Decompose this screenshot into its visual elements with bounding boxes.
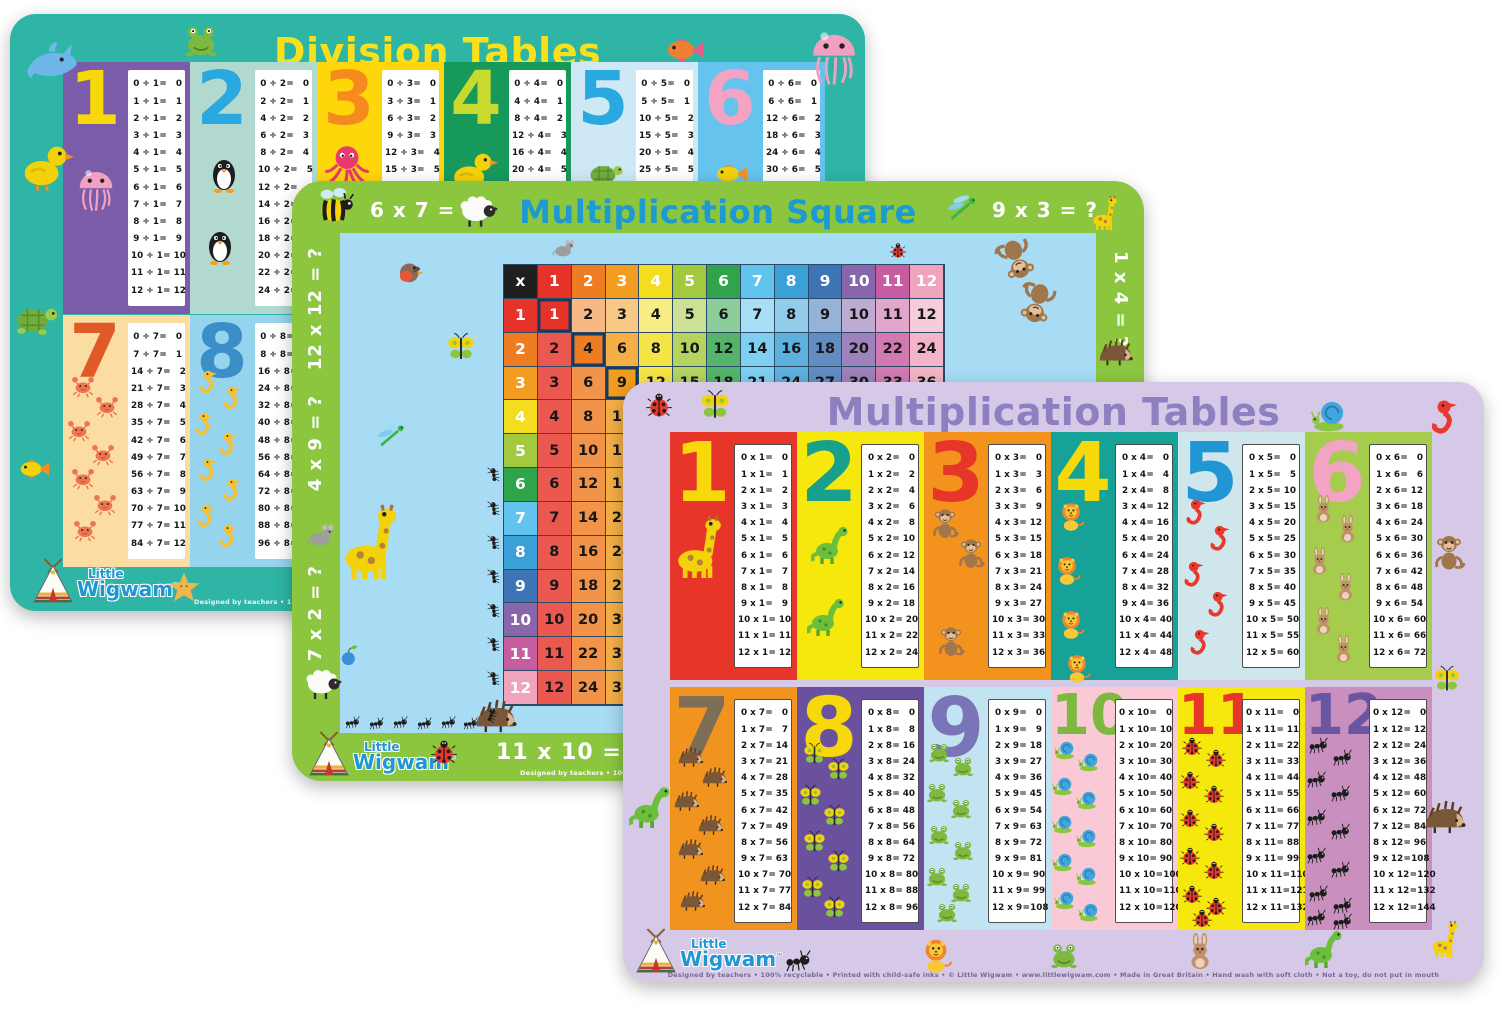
fact-row: 2 x 4=8 [1119,487,1169,496]
grid-row-header-cell: 4 [504,400,538,434]
grid-cell: 8 [775,299,809,333]
sheep-icon [458,189,500,231]
fact-row: 4 x 6=24 [1373,519,1423,528]
fact-row: 5 x 11=55 [1246,790,1296,799]
tables-panel-2: 20 x 2=01 x 2=22 x 2=43 x 2=64 x 2=85 x … [797,432,924,680]
fact-row: 4 x 11=44 [1246,774,1296,783]
grid-row-header-cell: 6 [504,468,538,502]
crab-icon [69,463,97,491]
fact-row: 9 x 10=90 [1119,855,1169,864]
fact-row: 18 ÷ 6=3 [766,132,817,141]
facts-box: 0 x 2=01 x 2=22 x 2=43 x 2=64 x 2=85 x 2… [861,444,919,668]
fact-row: 10 x 4=40 [1119,616,1169,625]
prompt-9x3: 9 x 3 = ? [992,198,1098,222]
fact-row: 5 x 3=15 [992,535,1042,544]
ladybird-icon [1180,883,1204,907]
fact-row: 10 ÷ 1=10 [131,252,182,261]
grid-cell: 9 [809,299,843,333]
grid-cell: 22 [876,333,910,367]
fact-row: 9 x 6=54 [1373,600,1423,609]
grid-header-cell: 1 [538,265,572,299]
fact-row: 42 ÷ 7=6 [131,437,182,446]
fact-row: 11 x 1=11 [738,632,788,641]
grid-cell: 12 [572,468,606,502]
fact-row: 4 x 1=4 [738,519,788,528]
panel-numeral: 10 [1051,687,1115,744]
giraffe-icon [1429,906,1465,972]
grid-cell: 6 [707,299,741,333]
grid-row-header-cell: 8 [504,536,538,570]
fact-row: 12 x 9=108 [992,904,1042,913]
grid-header-cell: 2 [572,265,606,299]
ant-icon [484,601,502,619]
fact-row: 3 x 9=27 [992,758,1042,767]
panel-numeral: 3 [317,62,381,137]
rabbit-icon [1181,932,1219,970]
grid-cell: 10 [673,333,707,367]
fact-row: 11 x 8=88 [865,887,915,896]
snail-icon [1075,787,1100,812]
hedgehog-icon [1421,794,1467,840]
grid-cell: 10 [842,299,876,333]
fact-row: 10 x 7=70 [738,871,788,880]
facts-box: 0 x 6=01 x 6=62 x 6=123 x 6=184 x 6=245 … [1369,444,1427,668]
fact-row: 11 x 5=55 [1246,632,1296,641]
facts-box: 0 x 11=01 x 11=112 x 11=223 x 11=334 x 1… [1242,699,1300,923]
fact-row: 84 ÷ 7=12 [131,540,182,549]
fact-row: 4 x 7=28 [738,774,788,783]
fact-row: 11 x 6=66 [1373,632,1423,641]
fact-row: 7 x 6=42 [1373,568,1423,577]
fact-row: 0 x 7=0 [738,709,788,718]
butterfly-icon [444,331,478,365]
fact-row: 11 x 10=110 [1119,887,1169,896]
seahorse-icon [1202,590,1232,620]
fact-row: 11 x 2=22 [865,632,915,641]
ladybird-icon [1178,769,1202,793]
facts-box: 0 x 4=01 x 4=42 x 4=83 x 4=124 x 4=165 x… [1115,444,1173,668]
fact-row: 10 ÷ 5=2 [639,115,690,124]
ant-icon [1307,881,1331,905]
prompt-12x12: 12 x 12 = ? [305,247,326,370]
snail-icon [1075,825,1100,850]
fact-row: 6 x 6=36 [1373,552,1423,561]
fact-row: 0 ÷ 3=0 [385,80,436,89]
fact-row: 0 ÷ 4=0 [512,80,563,89]
grid-header-cell: 9 [809,265,843,299]
fact-row: 11 x 9=99 [992,887,1042,896]
fact-row: 3 x 6=18 [1373,503,1423,512]
snail-icon [1051,849,1076,874]
grid-cell: 4 [572,333,606,367]
fact-row: 49 ÷ 7=7 [131,454,182,463]
fact-row: 7 x 1=7 [738,568,788,577]
fact-row: 9 x 3=27 [992,600,1042,609]
grid-cell: 4 [538,400,572,434]
hedgehog-icon [700,763,728,791]
ant-icon [462,714,480,732]
fact-row: 9 x 9=81 [992,855,1042,864]
fact-row: 20 ÷ 4=5 [512,166,563,175]
fact-row: 9 x 12=108 [1373,855,1423,864]
fact-row: 15 ÷ 5=3 [639,132,690,141]
facts-box: 0 x 9=01 x 9=92 x 9=183 x 9=274 x 9=365 … [988,699,1046,923]
fact-row: 2 x 2=4 [865,487,915,496]
fact-row: 14 ÷ 7=2 [131,368,182,377]
fact-row: 9 x 7=63 [738,855,788,864]
jellyfish-icon [802,22,866,86]
grid-cell: 2 [538,333,572,367]
fact-row: 56 ÷ 7=8 [131,471,182,480]
grid-cell: 20 [572,603,606,637]
fact-row: 5 x 8=40 [865,790,915,799]
fact-row: 3 x 3=9 [992,503,1042,512]
fact-row: 5 x 2=10 [865,535,915,544]
fact-row: 12 x 4=48 [1119,649,1169,658]
hedgehog-icon [698,861,726,889]
fact-row: 3 x 4=12 [1119,503,1169,512]
ladybird-icon [643,390,675,422]
fact-row: 9 ÷ 1=9 [131,235,182,244]
fact-row: 6 x 2=12 [865,552,915,561]
ant-icon [1305,905,1329,929]
fact-row: 2 x 3=6 [992,487,1042,496]
tables-panel-11: 110 x 11=01 x 11=112 x 11=223 x 11=334 x… [1178,687,1305,930]
rabbit-icon [1305,546,1334,575]
ladybird-icon [1178,845,1202,869]
seahorse-icon [190,411,217,438]
facts-box: 0 x 12=01 x 12=122 x 12=243 x 12=364 x 1… [1369,699,1427,923]
rabbit-icon [1309,606,1338,635]
grid-cell: 9 [538,570,572,604]
snail-icon [1077,899,1102,924]
lion-icon [917,936,955,974]
fact-row: 4 x 9=36 [992,774,1042,783]
frog-icon [948,795,974,821]
butterfly-icon [797,783,824,810]
fact-row: 3 x 11=33 [1246,758,1296,767]
grid-corner-cell: x [504,265,538,299]
fact-row: 12 ÷ 3=4 [385,149,436,158]
grid-row-header-cell: 1 [504,299,538,333]
fact-row: 12 ÷ 6=2 [766,115,817,124]
multiplication-tables-placemat: Multiplication Tables 10 x 1=01 x 1=12 x… [623,382,1484,982]
butterfly-icon [697,388,733,424]
fact-row: 5 x 5=25 [1246,535,1296,544]
fact-row: 6 x 3=18 [992,552,1042,561]
fact-row: 4 ÷ 4=1 [512,98,563,107]
ladybird-icon [1190,907,1214,931]
tipi-icon [635,928,677,974]
fact-row: 9 x 4=36 [1119,600,1169,609]
grid-cell: 6 [606,333,640,367]
ant-icon [1329,819,1353,843]
ant-icon [1329,781,1353,805]
grid-cell: 3 [606,299,640,333]
bee-icon [312,185,358,231]
fact-row: 12 x 1=12 [738,649,788,658]
ladybird-icon [1202,783,1226,807]
fact-row: 1 x 9=9 [992,726,1042,735]
monkey-icon [934,624,968,658]
fact-row: 3 x 2=6 [865,503,915,512]
giraffe-icon [1090,185,1124,241]
brand-line2: Wigwam™ [680,949,783,969]
fact-row: 2 x 7=14 [738,742,788,751]
ant-icon [344,713,362,731]
tables-panel-7: 70 x 7=01 x 7=72 x 7=143 x 7=214 x 7=285… [670,687,797,930]
fact-row: 1 x 11=11 [1246,726,1296,735]
fact-row: 2 ÷ 1=2 [131,115,182,124]
fact-row: 3 x 10=30 [1119,758,1169,767]
fact-row: 6 x 1=6 [738,552,788,561]
panel-numeral: 2 [190,62,254,137]
grid-cell: 24 [910,333,944,367]
giraffe-icon [672,516,734,578]
fact-row: 11 x 3=33 [992,632,1042,641]
grid-header-cell: 3 [606,265,640,299]
grid-cell: 8 [639,333,673,367]
grid-cell: 8 [572,400,606,434]
lion-icon [1051,554,1083,586]
fact-row: 0 x 8=0 [865,709,915,718]
fact-row: 2 x 1=2 [738,487,788,496]
butterfly-icon [801,741,828,768]
fact-row: 7 x 9=63 [992,823,1042,832]
tables-footer: Designed by teachers • 100% recyclable •… [623,971,1484,979]
fact-row: 0 x 10=0 [1119,709,1169,718]
fact-row: 5 x 12=60 [1373,790,1423,799]
fact-row: 9 x 5=45 [1246,600,1296,609]
grid-cell: 4 [639,299,673,333]
fact-row: 4 x 2=8 [865,519,915,528]
grid-header-cell: 11 [876,265,910,299]
tipi-icon [32,558,74,604]
fact-row: 30 ÷ 6=5 [766,166,817,175]
dragonfly-icon [946,191,982,227]
seahorse-icon [218,477,245,504]
fact-row: 0 x 6=0 [1373,454,1423,463]
fact-row: 0 ÷ 1=0 [131,80,182,89]
fact-row: 1 x 10=10 [1119,726,1169,735]
ant-icon [783,944,815,976]
fact-row: 2 x 6=12 [1373,487,1423,496]
ant-icon [484,635,502,653]
fact-row: 11 ÷ 1=11 [131,269,182,278]
butterfly-icon [825,757,852,784]
snail-icon [1053,737,1078,762]
fact-row: 1 x 1=1 [738,471,788,480]
facts-box: 0 x 1=01 x 1=12 x 1=23 x 1=34 x 1=45 x 1… [734,444,792,668]
fact-row: 0 x 4=0 [1119,454,1169,463]
tables-panel-1: 10 x 1=01 x 1=12 x 1=23 x 1=34 x 1=45 x … [670,432,797,680]
ant-icon [1307,733,1331,757]
ladybird-icon [888,241,908,261]
fact-row: 7 x 10=70 [1119,823,1169,832]
fact-row: 8 x 8=64 [865,839,915,848]
fact-row: 12 x 12=144 [1373,904,1423,913]
tipi-icon [308,731,350,777]
grid-cell: 14 [741,333,775,367]
grid-cell: 12 [538,671,572,705]
tables-panel-5: 50 x 5=01 x 5=52 x 5=103 x 5=154 x 5=205… [1178,432,1305,680]
ant-icon [1305,805,1329,829]
fact-row: 2 x 5=10 [1246,487,1296,496]
fact-row: 7 x 12=84 [1373,823,1423,832]
lion-icon [1055,608,1087,640]
grid-cell: 5 [673,299,707,333]
butterfly-icon [825,849,852,876]
dino-icon [1305,928,1345,968]
mouse-icon [552,235,578,261]
fact-row: 0 x 2=0 [865,454,915,463]
grid-row-header-cell: 11 [504,637,538,671]
grid-cell: 7 [741,299,775,333]
fact-row: 5 x 7=35 [738,790,788,799]
snail-icon [1077,749,1102,774]
fact-row: 7 x 3=21 [992,568,1042,577]
fact-row: 4 ÷ 1=4 [131,149,182,158]
grid-row-header-cell: 3 [504,367,538,401]
fact-row: 0 x 5=0 [1246,454,1296,463]
facts-box: 0 ÷ 1=01 ÷ 1=12 ÷ 1=23 ÷ 1=34 ÷ 1=45 ÷ 1… [128,70,185,306]
grid-row-header-cell: 5 [504,434,538,468]
division-panel-1: 10 ÷ 1=01 ÷ 1=12 ÷ 1=23 ÷ 1=34 ÷ 1=45 ÷ … [63,62,190,314]
fact-row: 8 x 7=56 [738,839,788,848]
ant-icon [484,567,502,585]
fact-row: 7 ÷ 1=7 [131,201,182,210]
fact-row: 3 ÷ 1=3 [131,132,182,141]
grid-cell: 14 [572,502,606,536]
fact-row: 4 x 12=48 [1373,774,1423,783]
fact-row: 5 x 9=45 [992,790,1042,799]
rabbit-icon [1331,572,1360,601]
seahorse-icon [1423,392,1463,444]
fact-row: 11 x 11=121 [1246,887,1296,896]
fact-row: 10 x 3=30 [992,616,1042,625]
fact-row: 8 x 5=40 [1246,584,1296,593]
seahorse-icon [218,385,245,412]
giraffe-icon [338,475,412,609]
ladybird-icon [428,737,460,769]
grid-cell: 3 [538,367,572,401]
fact-row: 0 ÷ 2=0 [258,80,309,89]
grid-header-cell: 4 [639,265,673,299]
fact-row: 5 x 1=5 [738,535,788,544]
seahorse-icon [1204,524,1234,554]
dragonfly-icon [376,419,410,453]
panel-numeral: 4 [444,62,508,137]
grid-cell: 12 [707,333,741,367]
fact-row: 8 x 11=88 [1246,839,1296,848]
fact-row: 5 x 4=20 [1119,535,1169,544]
fact-row: 0 x 11=0 [1246,709,1296,718]
fact-row: 70 ÷ 7=10 [131,505,182,514]
jellyfish-icon [71,162,121,212]
fact-row: 10 x 1=10 [738,616,788,625]
dino-icon [811,524,851,564]
fact-row: 12 x 6=72 [1373,649,1423,658]
fact-row: 10 x 2=20 [865,616,915,625]
grid-cell: 1 [538,299,572,333]
grid-cell: 11 [538,637,572,671]
fact-row: 1 x 7=7 [738,726,788,735]
prompt-4x9: 4 x 9 = ? [305,395,326,491]
ant-icon [416,714,434,732]
fact-row: 63 ÷ 7=9 [131,488,182,497]
snail-icon [1053,887,1078,912]
fact-row: 2 x 10=20 [1119,742,1169,751]
fact-row: 10 x 10=100 [1119,871,1169,880]
fact-row: 9 ÷ 3=3 [385,132,436,141]
robin-icon [394,255,428,289]
ant-icon [1329,857,1353,881]
fact-row: 1 x 2=2 [865,471,915,480]
fact-row: 2 ÷ 2=1 [258,98,309,107]
fact-row: 12 ÷ 4=3 [512,132,563,141]
ladybird-icon [1204,747,1228,771]
grid-row-header-cell: 10 [504,603,538,637]
fact-row: 1 x 5=5 [1246,471,1296,480]
frog-icon [950,753,976,779]
facts-box: 0 x 7=01 x 7=72 x 7=143 x 7=214 x 7=285 … [734,699,792,923]
fact-row: 12 x 2=24 [865,649,915,658]
butterfly-icon [801,829,828,856]
dolphin-icon [24,32,82,90]
prompt-7x2: 7 x 2 = ? [305,565,326,661]
frog-icon [180,19,222,61]
fact-row: 3 ÷ 3=1 [385,98,436,107]
fact-row: 1 x 3=3 [992,471,1042,480]
seahorse-icon [194,457,221,484]
grid-row-header-cell: 9 [504,570,538,604]
fact-row: 6 ÷ 1=6 [131,184,182,193]
frog-icon [1047,938,1081,972]
fact-row: 9 x 2=18 [865,600,915,609]
fact-row: 6 x 8=48 [865,807,915,816]
dino-icon [807,596,847,636]
fact-row: 15 ÷ 3=5 [385,166,436,175]
fact-row: 6 x 12=72 [1373,807,1423,816]
butterfly-icon [821,895,848,922]
fact-row: 7 x 4=28 [1119,568,1169,577]
fact-row: 12 ÷ 1=12 [131,287,182,296]
grid-row-header-cell: 7 [504,502,538,536]
fish-icon [16,450,54,488]
fact-row: 5 ÷ 1=5 [131,166,182,175]
penguin-icon [204,154,244,194]
division-panel-7: 70 ÷ 7=07 ÷ 7=114 ÷ 7=221 ÷ 7=328 ÷ 7=43… [63,315,190,567]
fact-row: 1 ÷ 1=1 [131,98,182,107]
fact-row: 8 ÷ 1=8 [131,218,182,227]
panel-numeral: 1 [670,432,734,516]
fact-row: 1 x 6=6 [1373,471,1423,480]
grid-cell: 8 [538,536,572,570]
ladybird-icon [1202,821,1226,845]
fact-row: 1 x 4=4 [1119,471,1169,480]
grid-cell: 5 [538,434,572,468]
fact-row: 6 x 9=54 [992,807,1042,816]
fact-row: 5 ÷ 5=1 [639,98,690,107]
fact-row: 9 x 8=72 [865,855,915,864]
fact-row: 35 ÷ 7=5 [131,419,182,428]
fact-row: 12 x 11=132 [1246,904,1296,913]
tables-panel-8: 80 x 8=01 x 8=82 x 8=163 x 8=244 x 8=325… [797,687,924,930]
snail-icon [1051,811,1076,836]
ant-icon [392,713,410,731]
fact-row: 6 x 7=42 [738,807,788,816]
fact-row: 4 ÷ 2=2 [258,115,309,124]
